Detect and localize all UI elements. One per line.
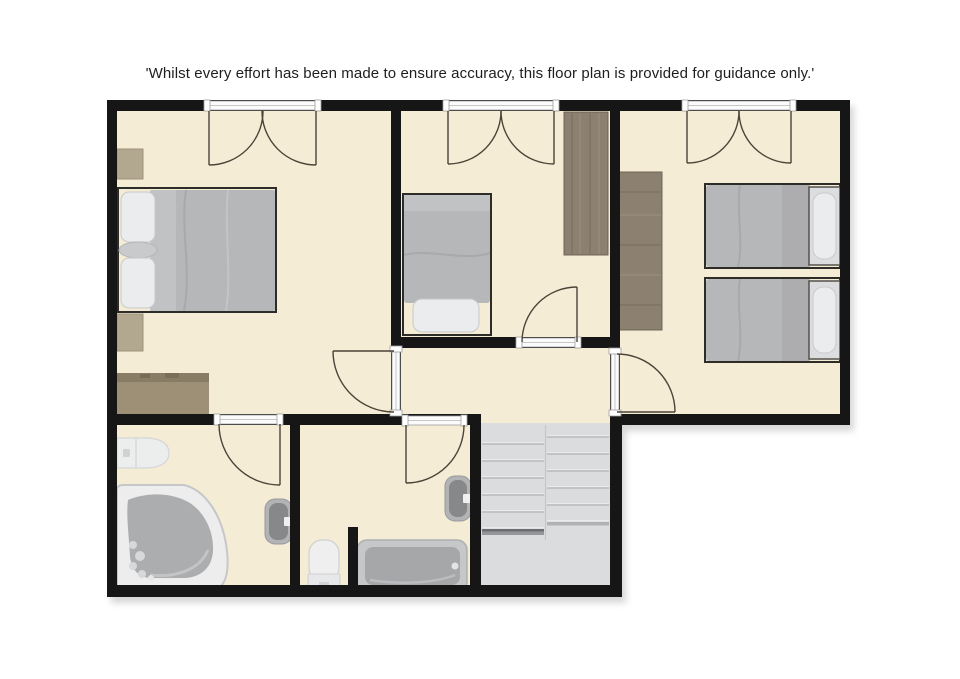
- threshold-bedroom3-entry: [609, 348, 621, 416]
- wardrobe-right-bedroom: [618, 172, 662, 330]
- threshold-bedroom1-entry: [390, 346, 402, 416]
- wall-right: [840, 100, 850, 425]
- threshold-bedroom3-french-doors: [682, 100, 796, 111]
- floorplan-page: 'Whilst every effort has been made to en…: [0, 0, 960, 679]
- wall-partition-stub: [348, 527, 358, 597]
- nightstand-bottom: [117, 314, 143, 351]
- wall-bedroom1-bedroom2: [391, 111, 401, 348]
- wall-bedroom2-bedroom3: [610, 111, 620, 348]
- wall-bottom: [107, 585, 622, 597]
- wall-basin-middle-bathroom: [445, 476, 471, 521]
- wall-stairs-left: [470, 414, 481, 597]
- bathtub: [357, 540, 467, 592]
- threshold-bathroom-left-entry: [214, 414, 283, 425]
- double-bed: [118, 188, 276, 312]
- wall-stairs-right: [610, 414, 622, 597]
- wall-right-bedroom-bottom: [610, 414, 850, 425]
- threshold-bedroom1-french-doors: [204, 100, 321, 111]
- staircase: [478, 423, 612, 589]
- wall-bathroom-divider: [290, 414, 300, 597]
- nightstand-top: [117, 149, 143, 179]
- twin-bed-bottom: [705, 278, 840, 362]
- threshold-bedroom2-french-doors: [443, 100, 559, 111]
- single-bed: [403, 194, 491, 335]
- twin-bed-top: [705, 184, 840, 268]
- wardrobe-middle-bedroom: [564, 112, 608, 255]
- wall-basin-left-bathroom: [265, 499, 292, 544]
- wall-landing-top: [391, 337, 620, 348]
- floorplan-drawing: [0, 0, 960, 679]
- wall-left: [107, 100, 117, 597]
- threshold-bathroom-middle-entry: [402, 415, 467, 426]
- rug: [117, 373, 209, 415]
- threshold-bedroom2-entry: [516, 337, 581, 348]
- vanity-basin: [117, 438, 169, 468]
